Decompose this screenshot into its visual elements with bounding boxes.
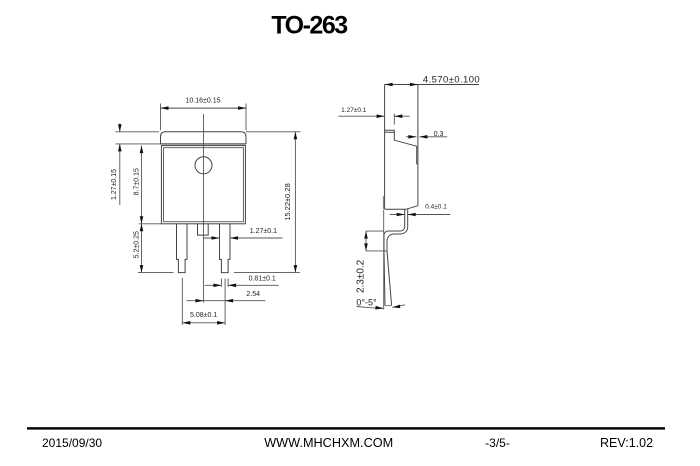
svg-text:15.22±0.28: 15.22±0.28	[283, 183, 292, 220]
svg-text:0.3: 0.3	[434, 131, 444, 138]
svg-text:2015/09/30: 2015/09/30	[42, 436, 102, 450]
svg-text:0.4±0.1: 0.4±0.1	[425, 204, 447, 211]
svg-text:0.81±0.1: 0.81±0.1	[249, 275, 276, 282]
svg-text:2.3±0.2: 2.3±0.2	[356, 259, 367, 293]
svg-text:8.7±0.15: 8.7±0.15	[134, 168, 141, 195]
svg-text:4.570±0.100: 4.570±0.100	[423, 75, 480, 86]
svg-text:REV:1.02: REV:1.02	[600, 436, 653, 450]
svg-text:1.27±0.1: 1.27±0.1	[250, 228, 277, 235]
svg-text:TO-263: TO-263	[271, 12, 347, 40]
svg-text:10.16±0.15: 10.16±0.15	[186, 98, 221, 105]
svg-text:WWW.MHCHXM.COM: WWW.MHCHXM.COM	[264, 436, 393, 450]
svg-text:1.27±0.1: 1.27±0.1	[341, 107, 367, 114]
svg-text:5.2±0.25: 5.2±0.25	[134, 231, 141, 258]
svg-text:5.08±0.1: 5.08±0.1	[190, 312, 217, 319]
svg-text:0°-5°: 0°-5°	[356, 298, 377, 308]
svg-text:-3/5-: -3/5-	[485, 436, 510, 450]
svg-text:2.54: 2.54	[246, 291, 260, 298]
svg-text:1.27±0.15: 1.27±0.15	[111, 169, 118, 200]
